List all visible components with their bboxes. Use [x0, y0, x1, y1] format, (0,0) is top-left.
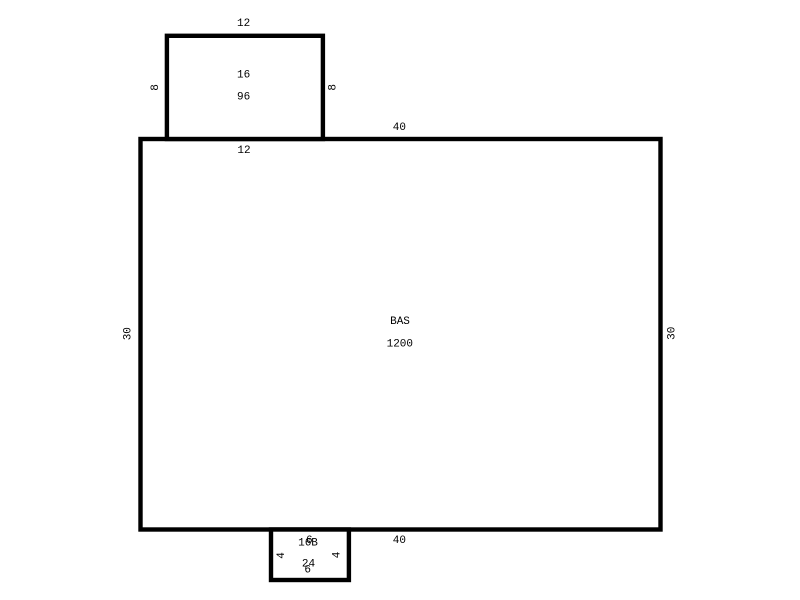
svg-text:12: 12 — [237, 18, 250, 30]
svg-text:BAS: BAS — [390, 316, 410, 328]
svg-text:6: 6 — [306, 535, 313, 547]
svg-text:30: 30 — [123, 327, 135, 340]
svg-text:6: 6 — [304, 565, 311, 577]
svg-text:8: 8 — [327, 84, 339, 91]
svg-text:8: 8 — [150, 84, 162, 91]
svg-text:1200: 1200 — [387, 339, 413, 351]
svg-text:40: 40 — [393, 122, 406, 134]
svg-text:40: 40 — [393, 535, 406, 547]
svg-text:30: 30 — [666, 327, 678, 340]
svg-text:96: 96 — [237, 91, 250, 103]
svg-text:16: 16 — [237, 70, 250, 82]
svg-text:12: 12 — [237, 145, 250, 157]
svg-text:4: 4 — [276, 552, 288, 559]
svg-text:4: 4 — [331, 551, 343, 558]
